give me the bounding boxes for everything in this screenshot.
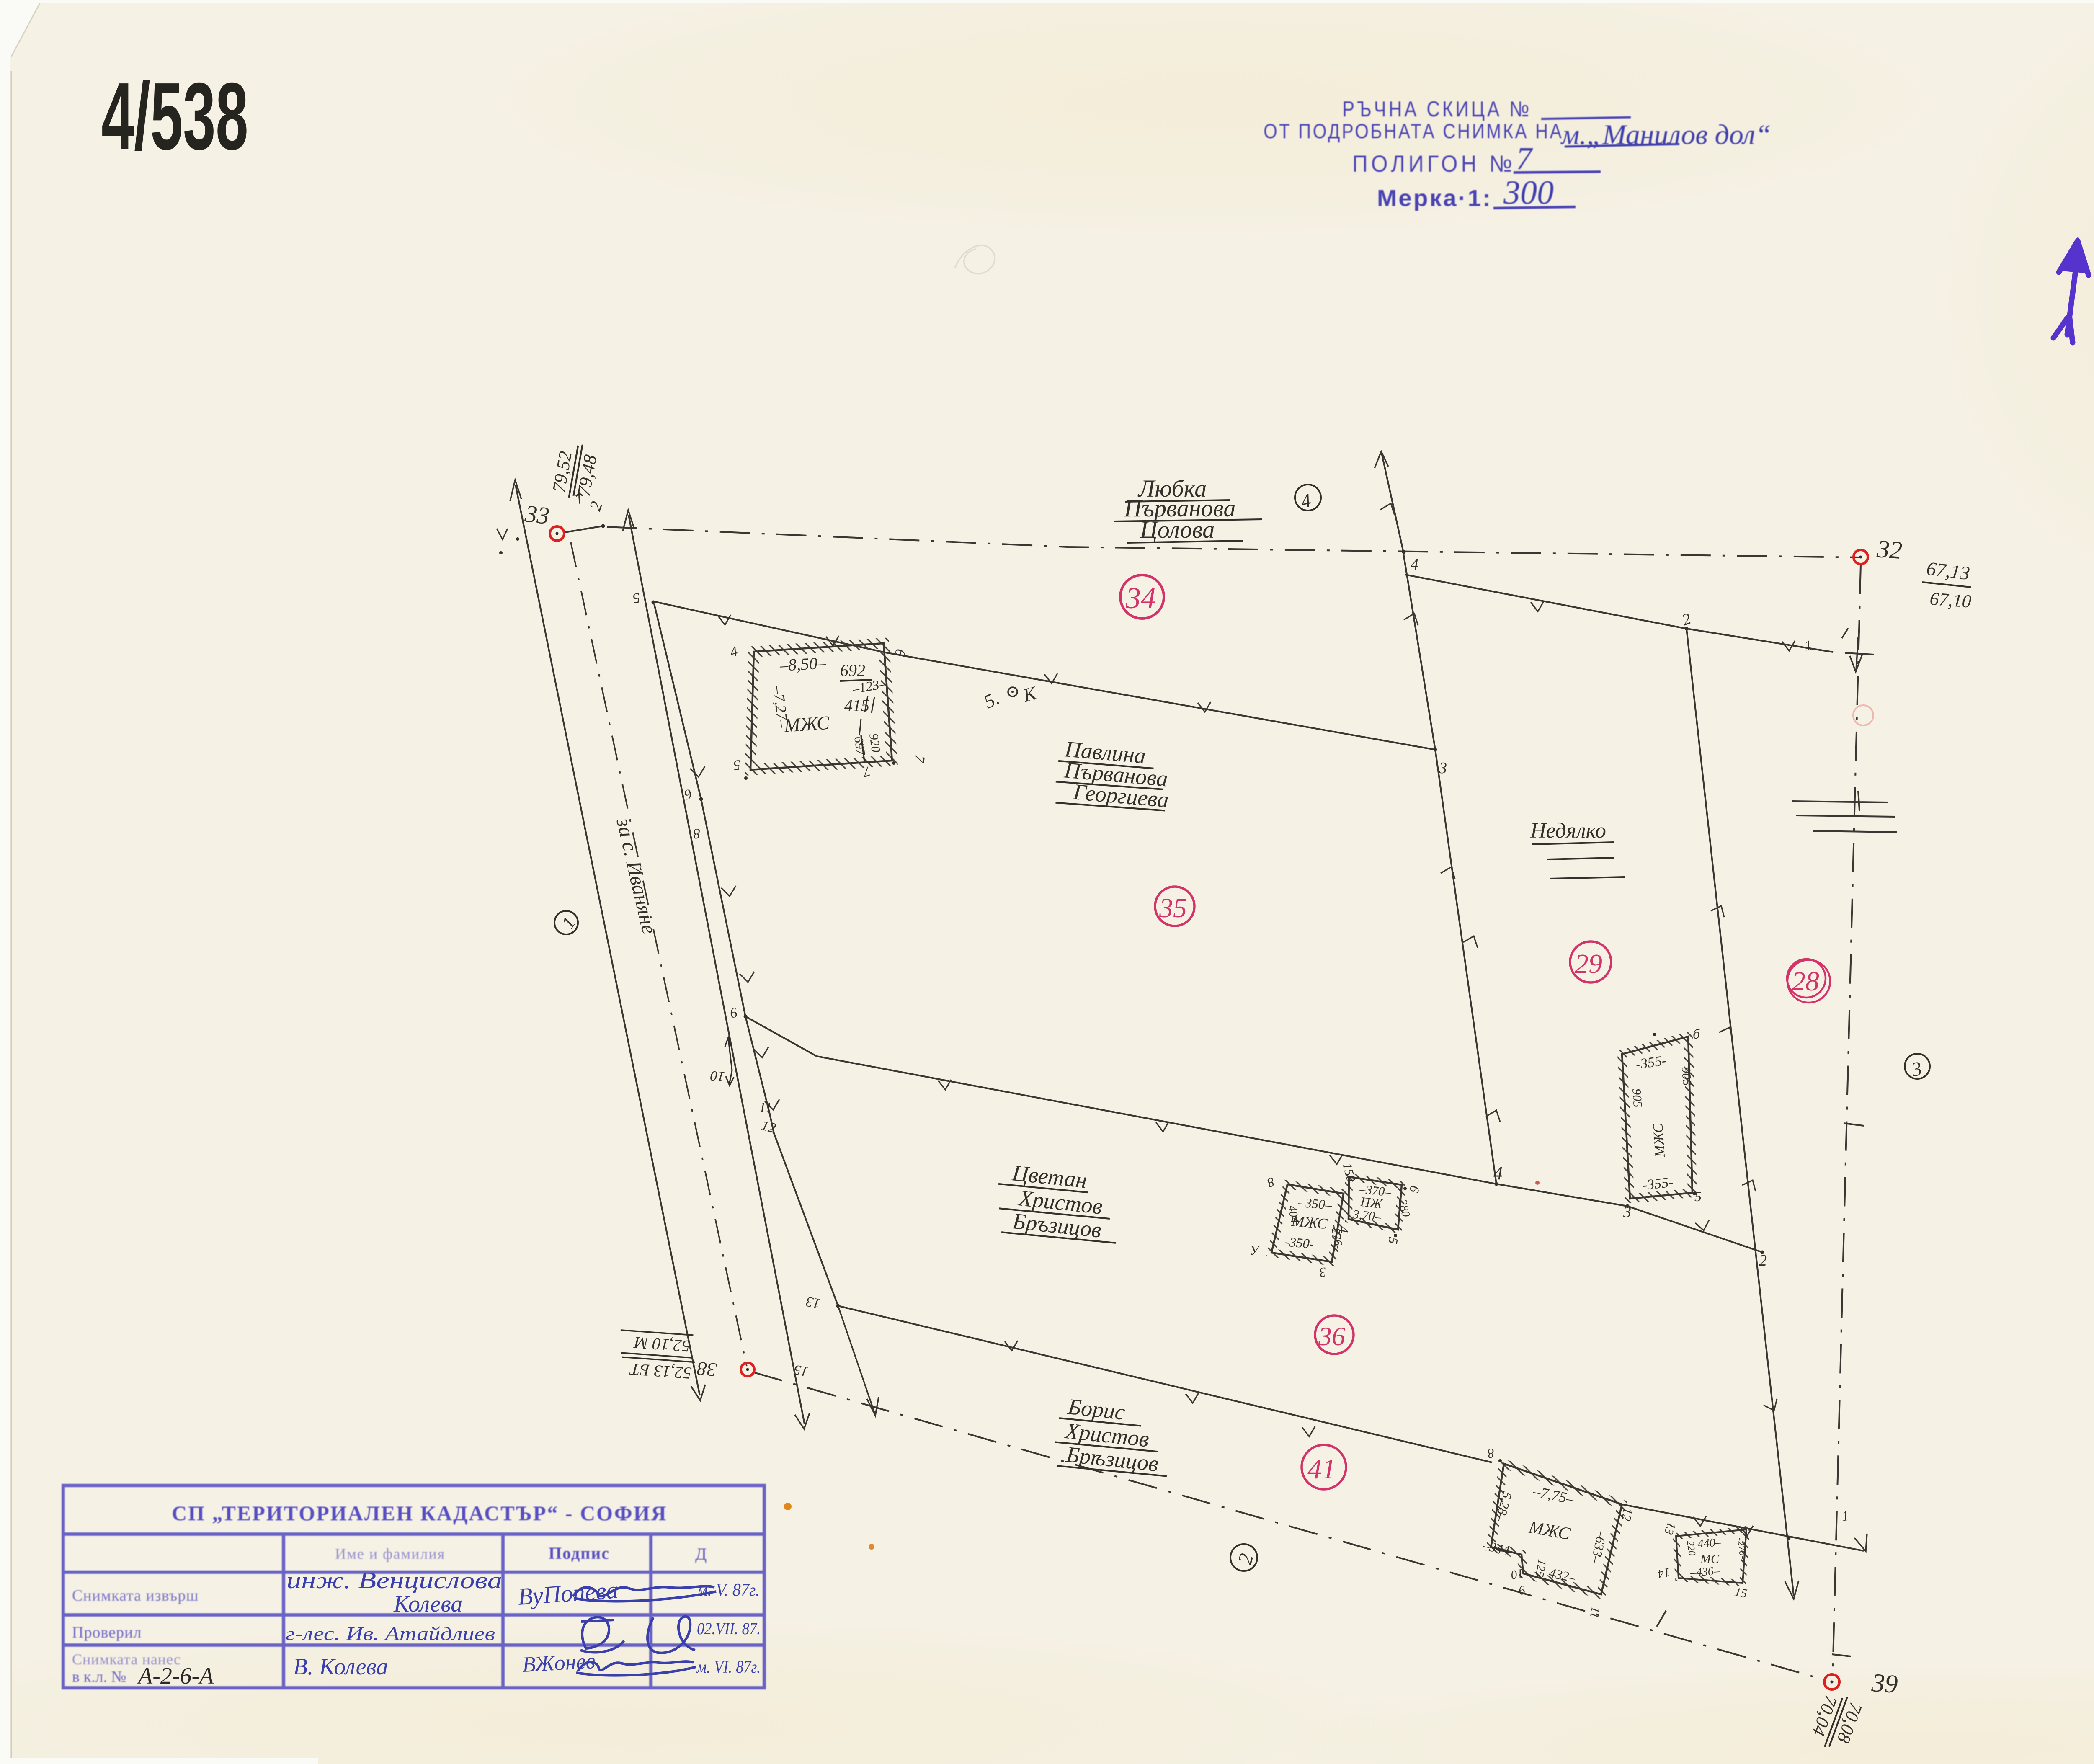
svg-text:г-лес. Ив. Атайдлиев: г-лес. Ив. Атайдлиев (286, 1623, 495, 1644)
svg-text:4: 4 (1411, 556, 1418, 573)
svg-text:41: 41 (1307, 1453, 1336, 1485)
svg-text:Недялко: Недялко (1530, 819, 1606, 843)
svg-text:СП „ТЕРИТОРИАЛЕН КАДАСТЪР“ - С: СП „ТЕРИТОРИАЛЕН КАДАСТЪР“ - СОФИЯ (172, 1501, 668, 1525)
svg-text:4/538: 4/538 (101, 63, 248, 170)
svg-text:м. V. 87г.: м. V. 87г. (696, 1581, 760, 1600)
svg-text:905: 905 (1630, 1088, 1645, 1108)
svg-text:Име и фамилия: Име и фамилия (335, 1545, 445, 1562)
svg-text:-355-: -355- (1642, 1174, 1674, 1193)
svg-text:–8,50–: –8,50– (779, 653, 827, 675)
svg-text:36: 36 (1318, 1321, 1345, 1351)
svg-text:32: 32 (1876, 535, 1903, 564)
svg-text:м. VI. 87г.: м. VI. 87г. (696, 1658, 761, 1677)
svg-text:33: 33 (523, 500, 550, 529)
svg-text:02.VII. 87.: 02.VII. 87. (697, 1619, 761, 1638)
svg-text:15: 15 (793, 1362, 810, 1379)
svg-text:Мерка·1:: Мерка·1: (1377, 185, 1492, 211)
svg-text:4: 4 (1493, 1163, 1503, 1184)
svg-text:У: У (1250, 1243, 1260, 1258)
svg-text:–350–: –350– (1297, 1194, 1333, 1212)
svg-text:Колева: Колева (393, 1591, 462, 1617)
svg-text:35: 35 (1159, 893, 1187, 923)
svg-text:В. Колева: В. Колева (293, 1654, 388, 1680)
svg-text:МЖС: МЖС (1650, 1123, 1668, 1158)
svg-text:39: 39 (1870, 1669, 1899, 1699)
svg-text:10: 10 (710, 1068, 725, 1084)
svg-text:ОТ ПОДРОБНАТА СНИМКА НА: ОТ ПОДРОБНАТА СНИМКА НА (1264, 120, 1563, 143)
svg-text:5: 5 (1694, 1189, 1702, 1204)
svg-text:220: 220 (1684, 1540, 1697, 1556)
svg-text:12: 12 (1619, 1506, 1636, 1522)
svg-text:14: 14 (1656, 1565, 1671, 1581)
svg-text:3: 3 (1623, 1203, 1631, 1221)
svg-text:Цолова: Цолова (1140, 516, 1215, 543)
svg-text:920: 920 (866, 732, 883, 753)
svg-text:в к.л. №: в к.л. № (72, 1668, 126, 1686)
svg-text:–436–: –436– (1689, 1564, 1720, 1579)
svg-text:4: 4 (1336, 1226, 1351, 1233)
svg-text:8: 8 (692, 825, 701, 841)
svg-text:МС: МС (1700, 1552, 1720, 1566)
svg-text:28: 28 (1792, 966, 1819, 997)
svg-text:Проверил: Проверил (72, 1624, 142, 1641)
svg-text:13: 13 (805, 1294, 821, 1311)
svg-text:А-2-6-А: А-2-6-А (137, 1663, 214, 1689)
svg-text:29: 29 (1575, 949, 1602, 979)
svg-text:Подпис: Подпис (549, 1544, 610, 1563)
svg-text:15: 15 (1733, 1585, 1748, 1601)
svg-text:38: 38 (696, 1358, 718, 1381)
svg-text:ПОЛИГОН №: ПОЛИГОН № (1352, 150, 1516, 177)
svg-text:РЪЧНА СКИЦА №: РЪЧНА СКИЦА № (1342, 97, 1532, 121)
svg-text:Снимката извърш: Снимката извърш (72, 1587, 199, 1604)
svg-text:Д: Д (695, 1545, 707, 1563)
svg-text:5: 5 (732, 757, 741, 773)
svg-text:300: 300 (1503, 174, 1554, 211)
svg-text:-350-: -350- (1284, 1234, 1315, 1251)
svg-text:б: б (1693, 1026, 1701, 1042)
svg-text:34: 34 (1125, 581, 1156, 615)
svg-text:67,10: 67,10 (1929, 588, 1972, 612)
svg-text:692: 692 (840, 661, 865, 680)
svg-text:905: 905 (1679, 1066, 1694, 1086)
svg-text:11: 11 (1587, 1606, 1603, 1620)
svg-text:11: 11 (759, 1100, 772, 1115)
svg-text:415: 415 (844, 696, 869, 715)
svg-text:697: 697 (851, 735, 868, 757)
svg-text:инж. Венцислова: инж. Венцислова (286, 1568, 502, 1594)
svg-text:10: 10 (1510, 1566, 1524, 1582)
svg-text:52,10 М: 52,10 М (632, 1333, 691, 1356)
svg-text:7: 7 (1516, 141, 1533, 176)
svg-text:3: 3 (1439, 759, 1447, 777)
svg-text:2: 2 (1759, 1252, 1767, 1269)
